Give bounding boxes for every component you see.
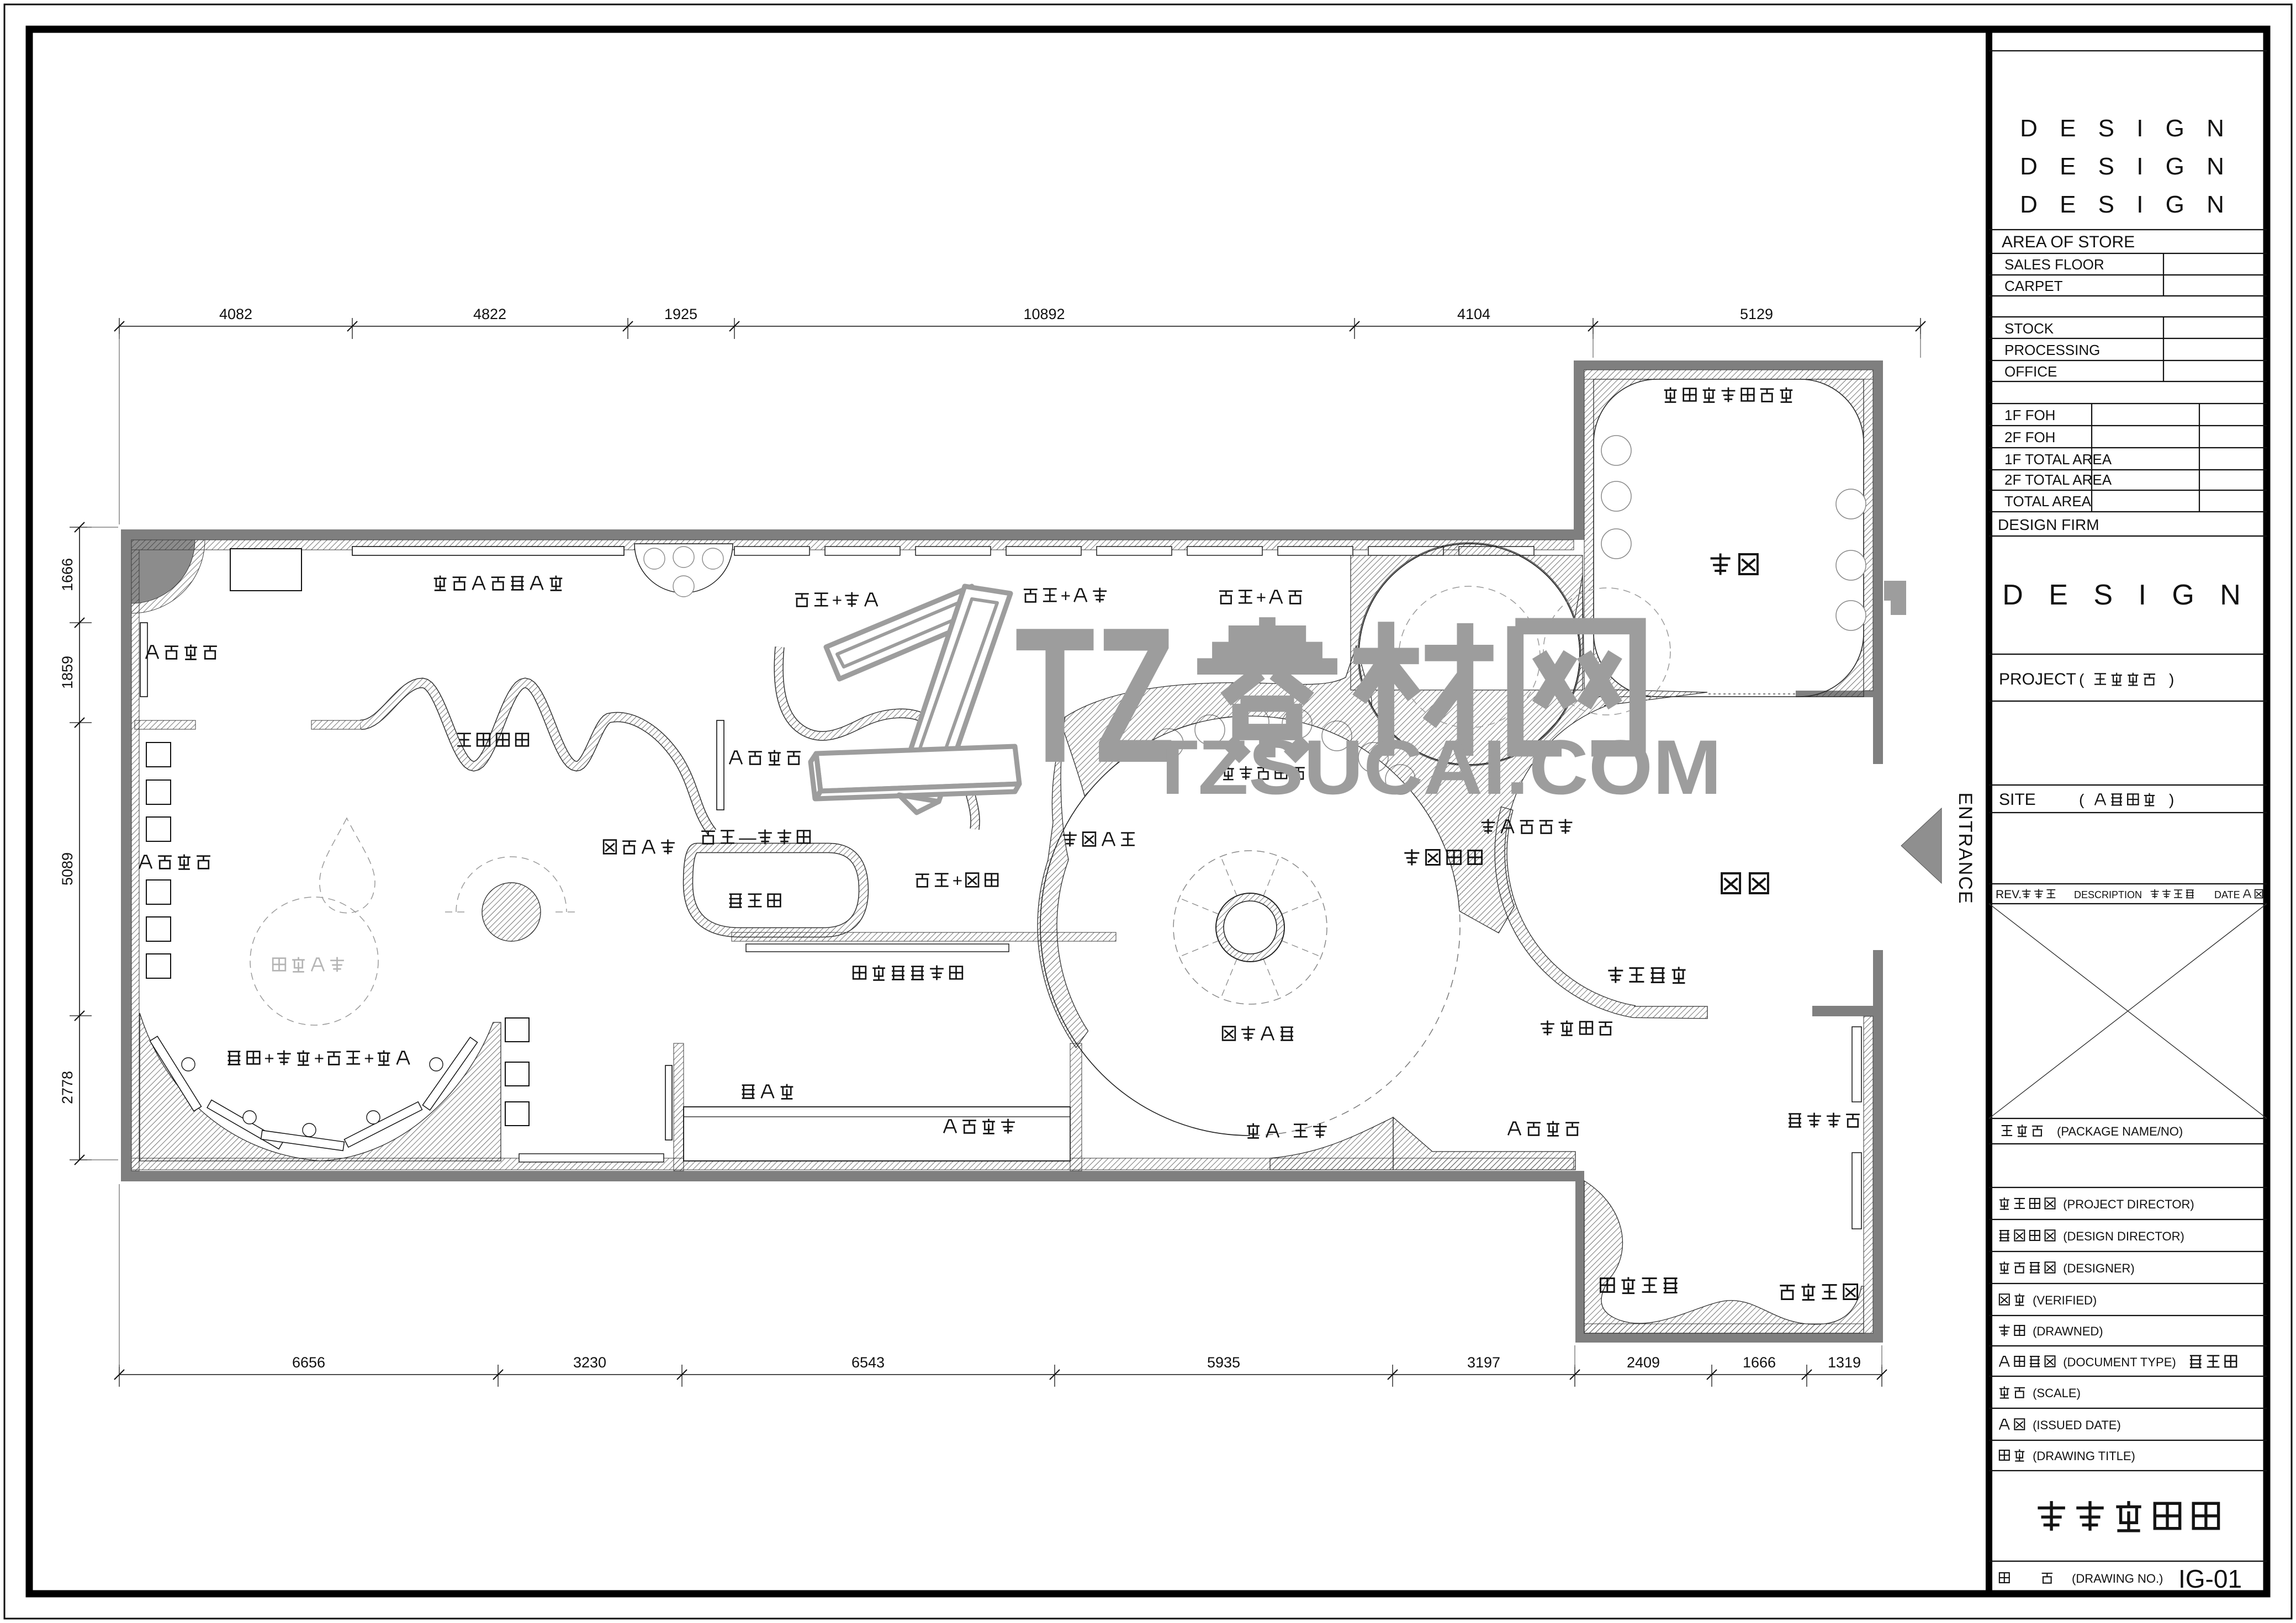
svg-text:DATE: DATE — [2214, 889, 2240, 900]
svg-text:AREA OF STORE: AREA OF STORE — [2002, 233, 2135, 251]
svg-text:(ISSUED DATE): (ISSUED DATE) — [2033, 1418, 2121, 1432]
svg-text:(VERIFIED): (VERIFIED) — [2033, 1293, 2097, 1307]
svg-text:TZSUCAI.COM: TZSUCAI.COM — [1147, 724, 1722, 810]
svg-text:1859: 1859 — [59, 656, 76, 689]
svg-text:2409: 2409 — [1627, 1354, 1660, 1371]
svg-text:D E S I G N: D E S I G N — [2020, 191, 2232, 218]
svg-text:2F TOTAL AREA: 2F TOTAL AREA — [2004, 471, 2112, 488]
svg-text:2778: 2778 — [59, 1071, 76, 1104]
svg-text:2F FOH: 2F FOH — [2004, 429, 2055, 445]
svg-text:(DESIGNER): (DESIGNER) — [2063, 1261, 2135, 1275]
svg-text:(PROJECT DIRECTOR): (PROJECT DIRECTOR) — [2063, 1197, 2194, 1211]
svg-text:D E S I G N: D E S I G N — [2020, 115, 2232, 142]
svg-text:(DRAWING TITLE): (DRAWING TITLE) — [2033, 1449, 2135, 1463]
svg-text:STOCK: STOCK — [2004, 320, 2054, 337]
svg-text:1925: 1925 — [664, 306, 697, 322]
svg-text:D E S I G N: D E S I G N — [2002, 579, 2250, 611]
svg-text:PROCESSING: PROCESSING — [2004, 342, 2100, 358]
svg-text:4082: 4082 — [219, 306, 252, 322]
svg-text:3230: 3230 — [573, 1354, 606, 1371]
svg-text:—: — — [739, 828, 756, 847]
svg-text:): ) — [2169, 671, 2174, 688]
svg-text:1F TOTAL AREA: 1F TOTAL AREA — [2004, 451, 2112, 468]
svg-text:(DOCUMENT TYPE): (DOCUMENT TYPE) — [2063, 1355, 2176, 1369]
svg-text:+: + — [264, 1049, 274, 1068]
svg-text:1F FOH: 1F FOH — [2004, 407, 2055, 423]
svg-text:PROJECT: PROJECT — [1999, 670, 2076, 688]
svg-text:ENTRANCE: ENTRANCE — [1955, 792, 1976, 904]
svg-text:1666: 1666 — [1743, 1354, 1776, 1371]
svg-text:+: + — [364, 1049, 374, 1068]
svg-text:SALES FLOOR: SALES FLOOR — [2004, 256, 2104, 273]
svg-text:+: + — [832, 591, 842, 610]
svg-text:(SCALE): (SCALE) — [2033, 1386, 2081, 1400]
svg-text:+: + — [314, 1049, 324, 1068]
svg-text:+: + — [1256, 588, 1266, 607]
svg-text:3197: 3197 — [1467, 1354, 1500, 1371]
svg-text:DESIGN FIRM: DESIGN FIRM — [1998, 516, 2099, 533]
svg-text:4822: 4822 — [473, 306, 506, 322]
svg-text:OFFICE: OFFICE — [2004, 363, 2057, 380]
svg-text:5129: 5129 — [1740, 306, 1773, 322]
svg-text:10892: 10892 — [1023, 306, 1065, 322]
svg-text:6656: 6656 — [292, 1354, 325, 1371]
svg-text:(DRAWING NO.): (DRAWING NO.) — [2072, 1572, 2163, 1585]
svg-text:1319: 1319 — [1828, 1354, 1861, 1371]
svg-text:(PACKAGE NAME/NO): (PACKAGE NAME/NO) — [2057, 1125, 2183, 1138]
svg-text:SITE: SITE — [1999, 791, 2036, 809]
svg-text:5089: 5089 — [59, 852, 76, 885]
svg-text:TOTAL AREA: TOTAL AREA — [2004, 493, 2092, 510]
svg-text:6543: 6543 — [851, 1354, 885, 1371]
svg-text:CARPET: CARPET — [2004, 278, 2063, 294]
svg-text:): ) — [2169, 791, 2174, 808]
svg-text:DESCRIPTION: DESCRIPTION — [2074, 889, 2142, 900]
svg-text:5935: 5935 — [1207, 1354, 1240, 1371]
svg-text:IG-01: IG-01 — [2178, 1564, 2242, 1593]
svg-text:REV.: REV. — [1996, 888, 2022, 901]
svg-text:+: + — [953, 871, 962, 890]
svg-text:(: ( — [2079, 671, 2085, 688]
svg-text:1666: 1666 — [59, 558, 76, 591]
svg-text:(DESIGN DIRECTOR): (DESIGN DIRECTOR) — [2063, 1229, 2184, 1243]
svg-text:(: ( — [2079, 791, 2085, 808]
svg-text:(DRAWNED): (DRAWNED) — [2033, 1324, 2103, 1338]
svg-text:D E S I G N: D E S I G N — [2020, 153, 2232, 180]
svg-text:4104: 4104 — [1457, 306, 1490, 322]
